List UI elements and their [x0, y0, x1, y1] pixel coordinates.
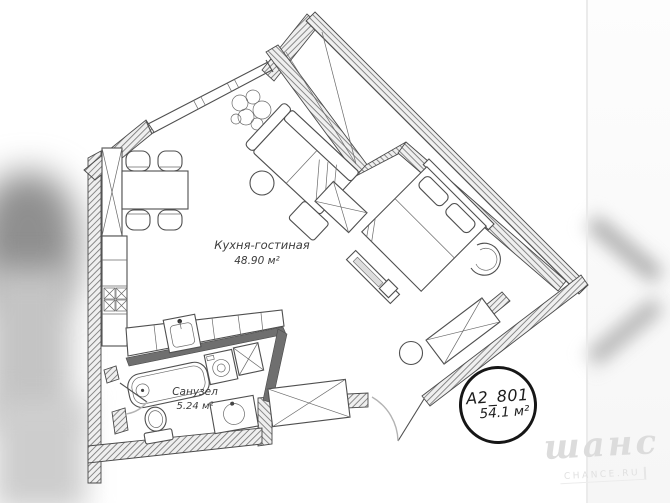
side-table	[250, 171, 274, 195]
wall-loggia-wedge	[356, 142, 406, 176]
chair	[158, 210, 182, 230]
bathroom-name: Санузел	[172, 386, 218, 398]
living-room-area: 48.90 м²	[234, 255, 280, 267]
washing-machine	[204, 349, 238, 384]
stool	[400, 342, 423, 365]
entrance-door	[372, 397, 424, 441]
wall-bath-partition-lower	[112, 408, 128, 434]
vanity-sink	[210, 395, 259, 433]
wall-left	[88, 151, 101, 483]
chair	[126, 210, 150, 230]
wall-bath-partition-upper	[104, 366, 119, 383]
dining-table	[122, 171, 188, 209]
floor-plan-image: Кухня-гостиная 48.90 м² Санузел 5.24 м² …	[0, 0, 670, 503]
wardrobe-hall	[268, 379, 350, 426]
dining-set	[122, 151, 188, 230]
toilet	[140, 405, 174, 444]
tall-cabinet	[102, 148, 122, 236]
kitchen-column	[102, 236, 127, 346]
living-room-name: Кухня-гостиная	[214, 238, 310, 252]
bathroom-area: 5.24 м²	[177, 401, 214, 412]
chair	[158, 151, 182, 171]
bathroom-cabinet	[233, 343, 263, 376]
floor-plan-drawing: Кухня-гостиная 48.90 м² Санузел 5.24 м²	[0, 0, 670, 503]
window	[146, 60, 273, 134]
armchair	[471, 243, 500, 275]
chair	[126, 151, 150, 171]
unit-area: 54.1 м²	[467, 404, 530, 424]
wall-bottom-left	[88, 428, 262, 463]
kitchen-sink	[163, 314, 201, 352]
